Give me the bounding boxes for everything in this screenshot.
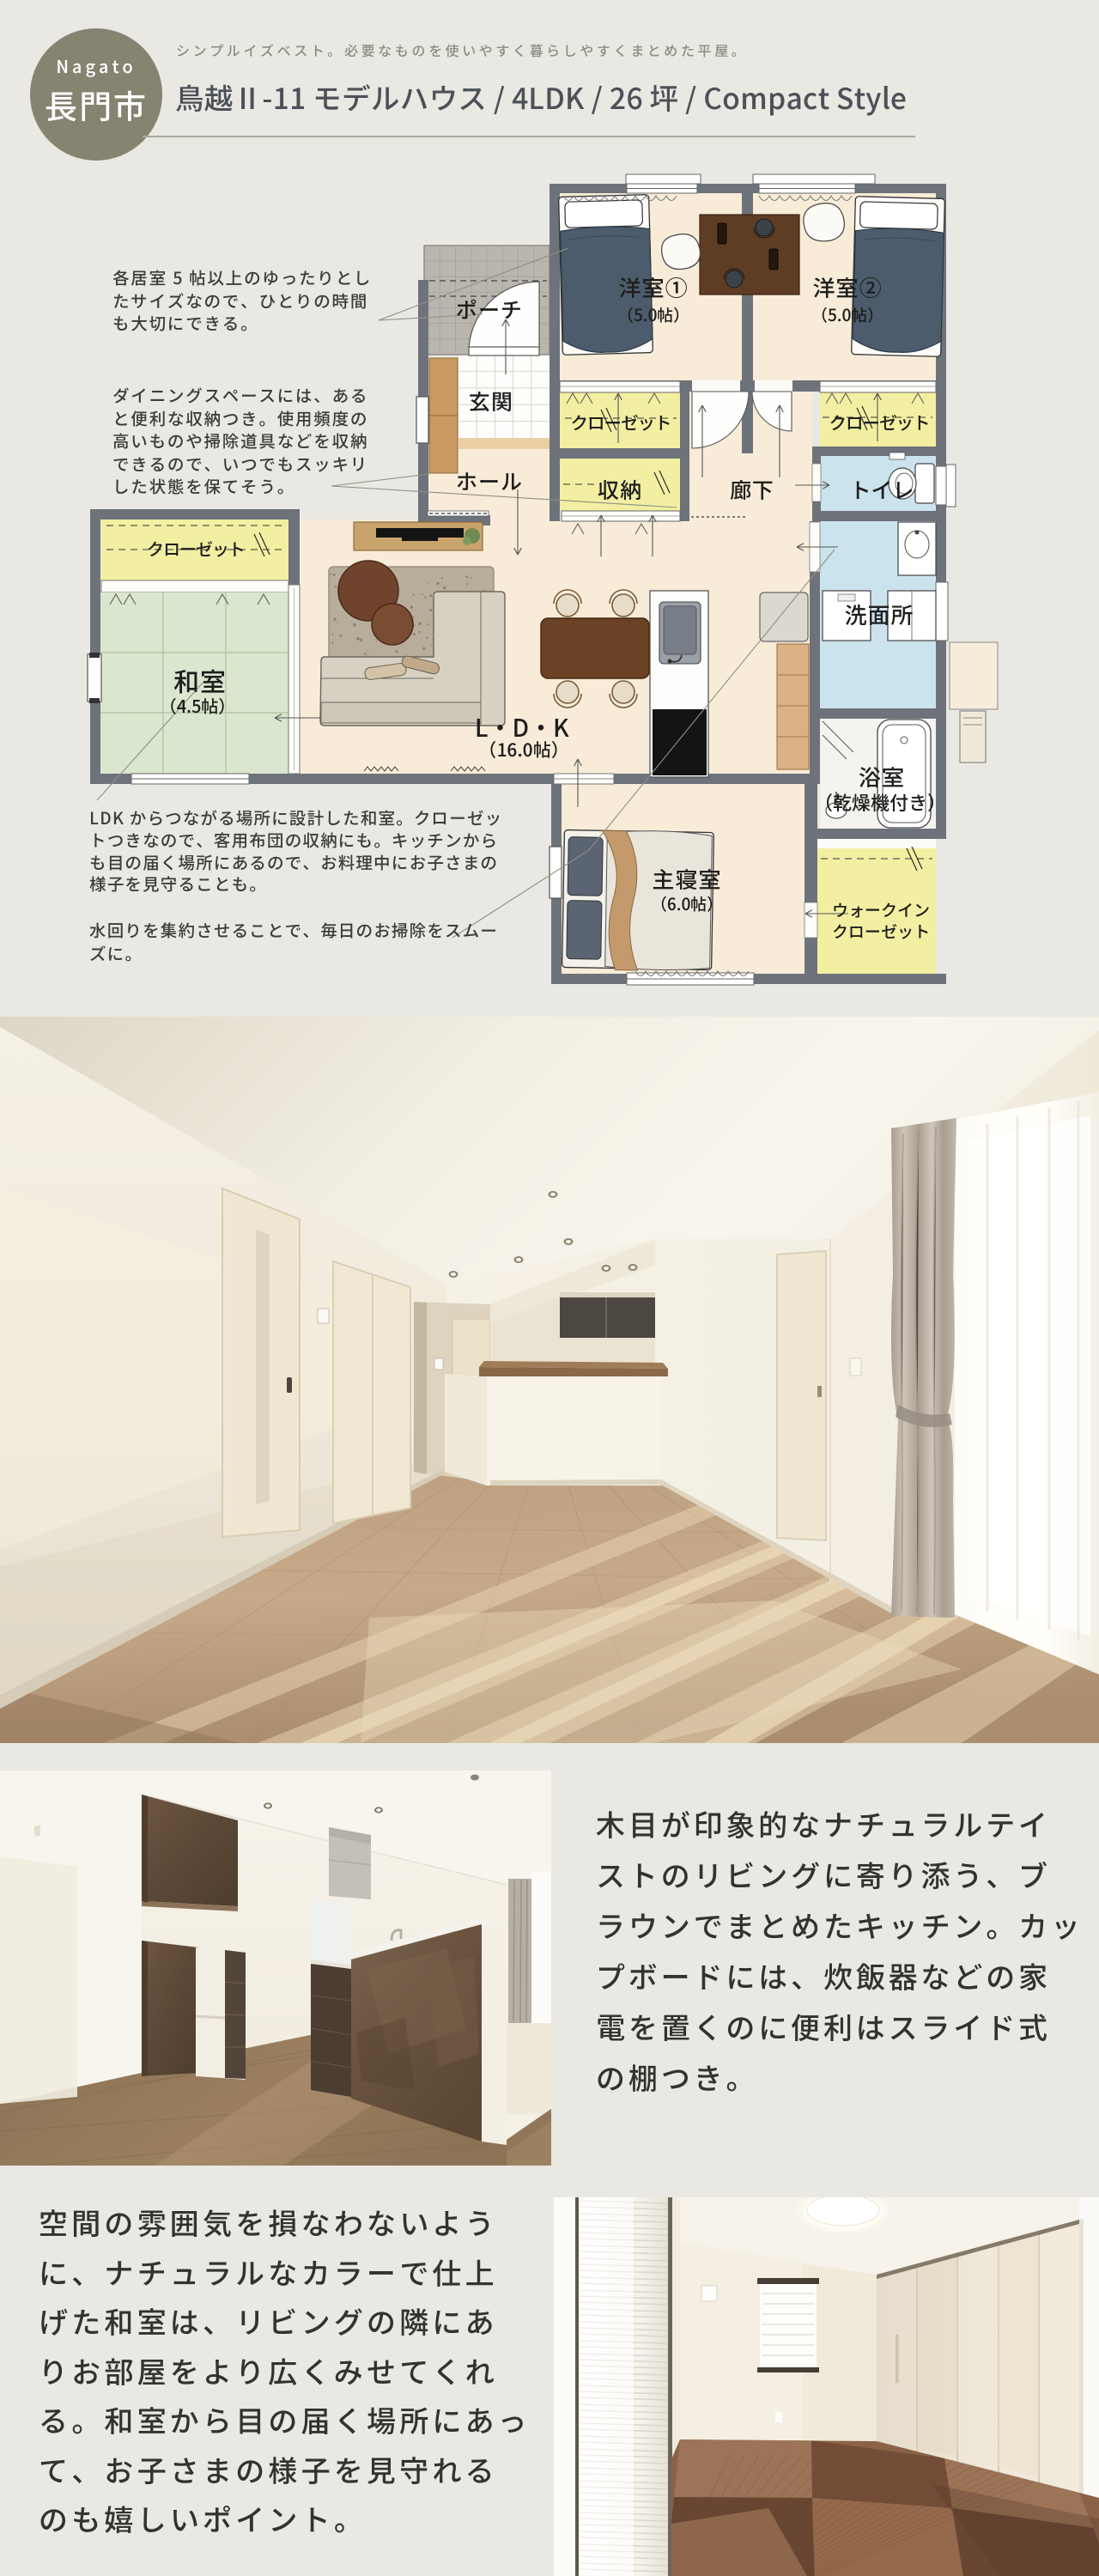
svg-text:（16.0帖）: （16.0帖） [478,737,568,762]
svg-text:玄関: 玄関 [469,386,513,416]
svg-text:（乾燥機付き）: （乾燥機付き） [814,788,946,816]
svg-text:（4.5帖）: （4.5帖） [160,693,236,718]
svg-text:主寝室: 主寝室 [652,863,721,895]
svg-text:洗面所: 洗面所 [844,598,914,630]
svg-text:（6.0帖）: （6.0帖） [651,892,723,915]
svg-text:トイレ: トイレ [849,474,914,505]
svg-text:洋室②: 洋室② [812,271,882,303]
svg-text:（5.0帖）: （5.0帖） [811,303,883,326]
svg-text:クローゼット: クローゼット [832,920,930,943]
svg-text:ポーチ: ポーチ [456,294,523,325]
svg-text:ウォークイン: ウォークイン [832,898,930,921]
svg-text:ホール: ホール [456,465,523,496]
svg-text:クローゼット: クローゼット [147,536,245,561]
svg-text:廊下: 廊下 [730,474,774,505]
svg-text:洋室①: 洋室① [618,271,688,303]
svg-text:クローゼット: クローゼット [829,409,930,434]
svg-text:クローゼット: クローゼット [571,409,671,434]
svg-text:収納: 収納 [598,474,642,505]
svg-text:（5.0帖）: （5.0帖） [617,303,689,326]
